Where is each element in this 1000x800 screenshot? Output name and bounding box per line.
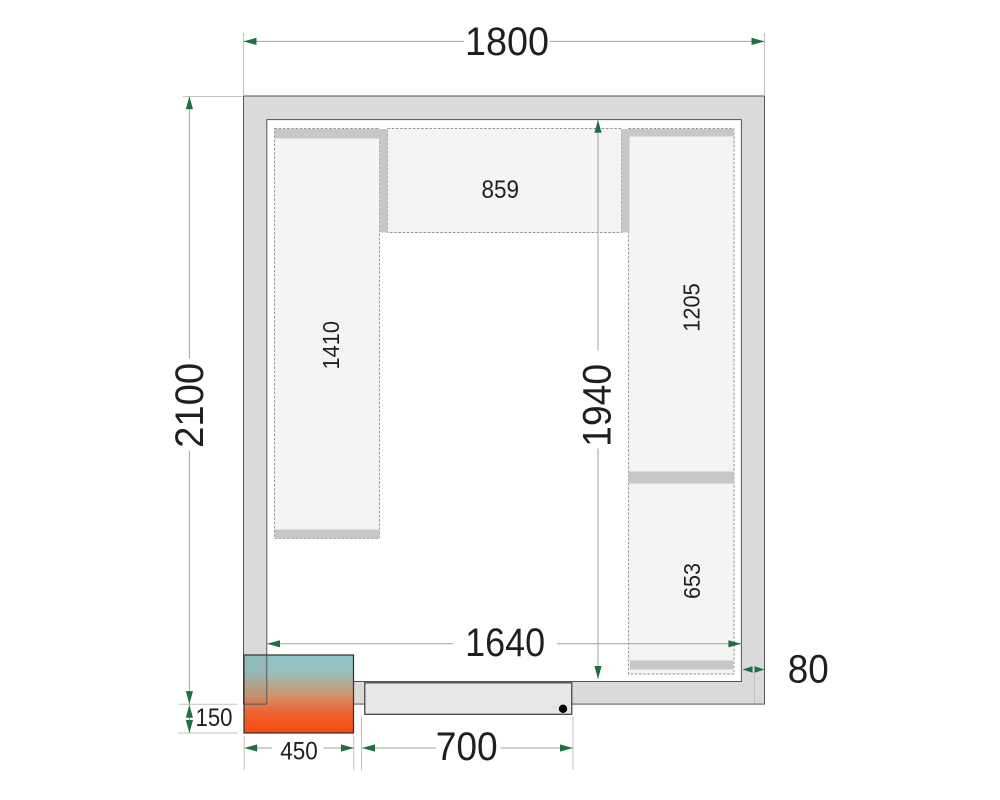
svg-text:1800: 1800	[465, 20, 549, 64]
svg-text:1205: 1205	[678, 283, 704, 332]
svg-text:150: 150	[196, 704, 233, 732]
svg-text:450: 450	[280, 737, 318, 765]
svg-text:2100: 2100	[168, 363, 212, 448]
svg-text:1410: 1410	[318, 321, 344, 370]
svg-text:80: 80	[788, 647, 829, 691]
svg-text:653: 653	[679, 563, 705, 599]
svg-text:700: 700	[436, 725, 498, 769]
svg-text:1940: 1940	[575, 364, 619, 447]
svg-text:859: 859	[482, 176, 520, 204]
svg-text:1640: 1640	[465, 621, 545, 665]
